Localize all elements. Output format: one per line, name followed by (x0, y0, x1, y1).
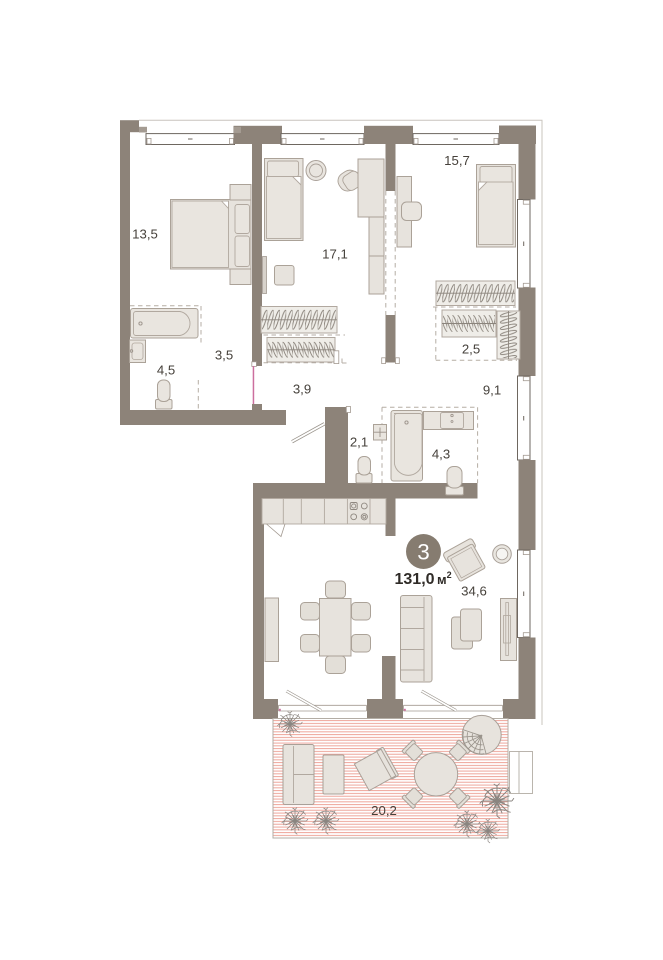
svg-text:4,3: 4,3 (432, 447, 450, 462)
svg-text:20,2: 20,2 (371, 803, 397, 818)
svg-text:15,7: 15,7 (444, 153, 470, 168)
svg-text:4,5: 4,5 (157, 363, 175, 378)
svg-text:2,1: 2,1 (350, 435, 368, 450)
svg-text:131,0м2: 131,0м2 (395, 570, 452, 588)
svg-text:17,1: 17,1 (322, 247, 348, 262)
svg-text:9,1: 9,1 (483, 383, 501, 398)
svg-text:13,5: 13,5 (132, 227, 158, 242)
svg-text:3: 3 (417, 540, 430, 565)
svg-text:3,9: 3,9 (293, 382, 311, 397)
svg-text:3,5: 3,5 (215, 348, 233, 363)
svg-text:34,6: 34,6 (461, 584, 487, 599)
svg-text:2,5: 2,5 (462, 342, 480, 357)
